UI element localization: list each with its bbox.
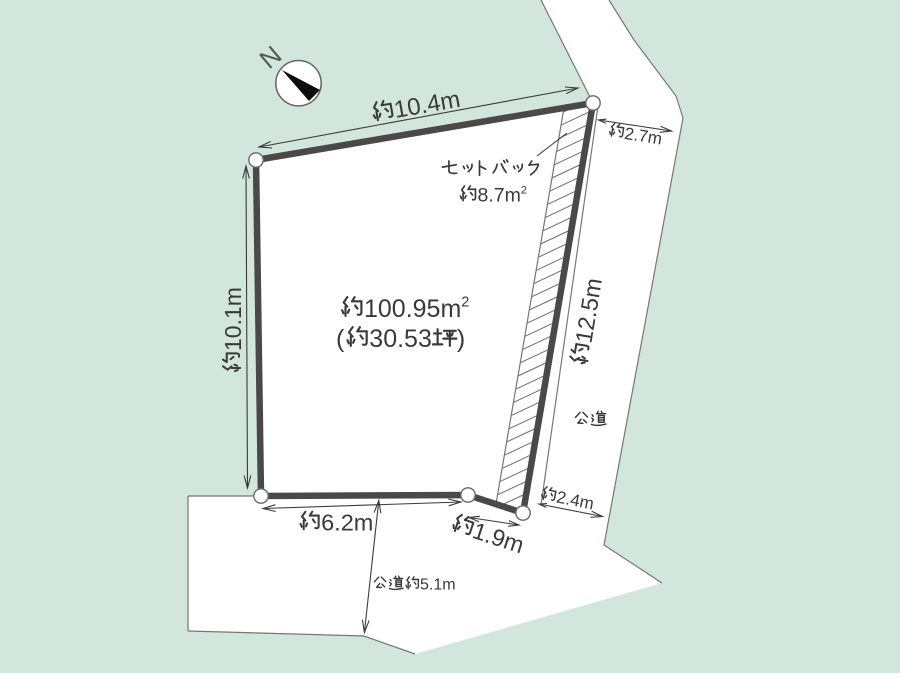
svg-text:5.1m: 5.1m bbox=[420, 577, 456, 594]
svg-text:6.2m: 6.2m bbox=[321, 509, 373, 535]
svg-text:(: ( bbox=[336, 325, 345, 353]
svg-text:2: 2 bbox=[521, 184, 527, 196]
svg-text:10.1m: 10.1m bbox=[220, 287, 246, 351]
svg-text:2: 2 bbox=[461, 295, 469, 311]
svg-text:100.95m: 100.95m bbox=[364, 295, 461, 323]
svg-text:30.53: 30.53 bbox=[369, 325, 432, 353]
svg-text:8.7m: 8.7m bbox=[478, 185, 521, 207]
svg-text:): ) bbox=[457, 325, 465, 353]
